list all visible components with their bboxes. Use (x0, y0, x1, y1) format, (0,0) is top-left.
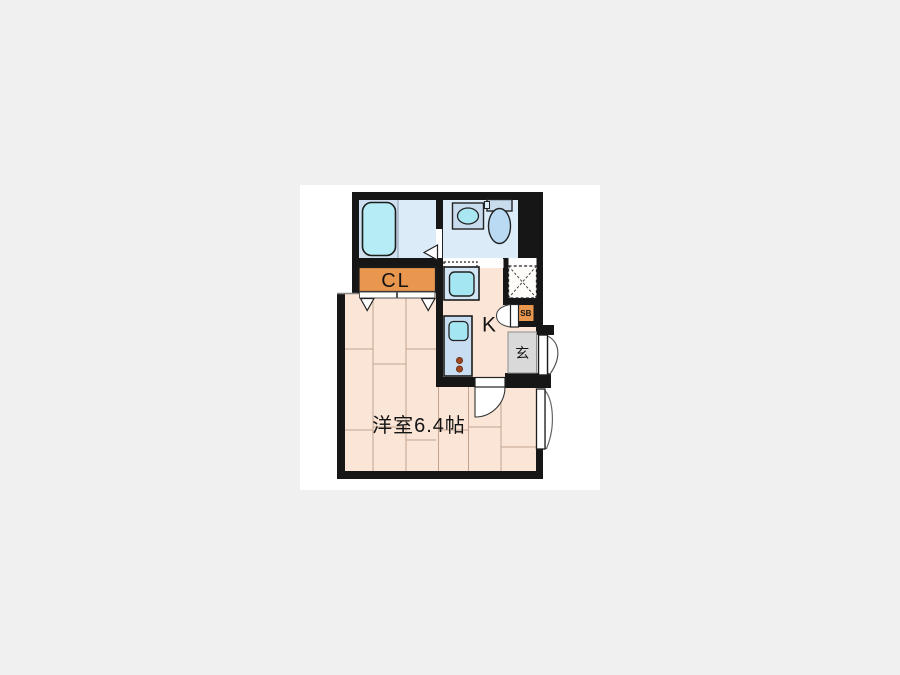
stove-burner-knob (456, 357, 462, 363)
wall-segment (536, 449, 543, 479)
wall-segment (503, 258, 509, 305)
kitchen-label: K (482, 314, 496, 337)
wall-segment (518, 321, 537, 327)
white-patch (509, 258, 537, 266)
stove (449, 322, 468, 341)
washbasin-bowl (458, 208, 479, 224)
western-room-floor-left (345, 294, 436, 471)
room-door-leaf (475, 378, 505, 388)
closet-label: CL (381, 270, 411, 292)
stove-burner-knob (456, 366, 462, 372)
wall-segment (436, 377, 475, 387)
closet-door-panel (360, 292, 397, 298)
shoe-box-label: SB (520, 309, 531, 318)
wall-segment (352, 258, 443, 267)
toilet-bowl (489, 209, 511, 244)
washing-machine-space (509, 266, 537, 298)
wall-segment (533, 305, 537, 322)
page: CL K SB 玄 洋室6.4帖 (0, 0, 900, 675)
kitchen-sink (450, 272, 475, 296)
bathtub (363, 203, 396, 256)
wall-segment (337, 471, 543, 479)
entrance-label: 玄 (515, 345, 529, 361)
floorplan: CL K SB 玄 洋室6.4帖 (0, 0, 900, 675)
wall-segment (337, 293, 345, 479)
balcony-door-leaf (537, 389, 546, 449)
western-room-label: 洋室6.4帖 (372, 414, 466, 437)
entrance-door-leaf (539, 335, 548, 375)
wall-segment (518, 192, 543, 258)
shoe-box-door-leaf (511, 305, 519, 328)
closet-door-panel (398, 292, 436, 298)
toilet-flush-handle (485, 202, 490, 209)
wall-segment (537, 256, 544, 326)
wall-segment (352, 192, 543, 200)
wall-segment (536, 325, 554, 335)
toilet-door-opening (477, 259, 504, 268)
wall-segment (436, 199, 443, 229)
